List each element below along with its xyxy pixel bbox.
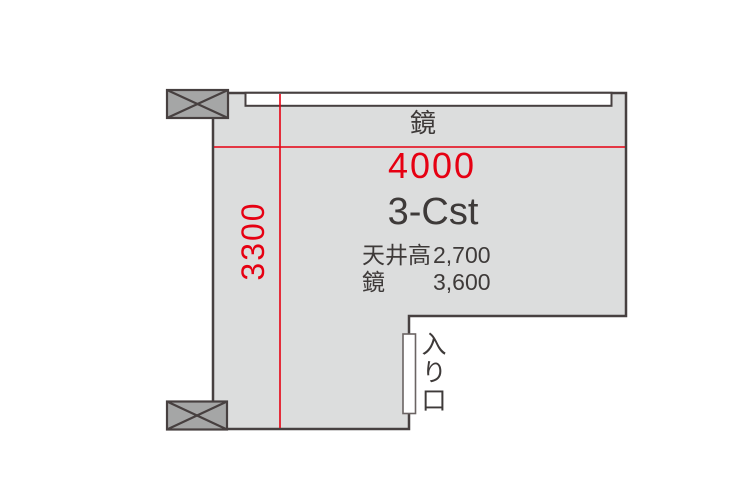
pillar-bottom bbox=[167, 402, 227, 430]
spec-label-mirror: 鏡 bbox=[362, 270, 433, 295]
floorplan-canvas: 鏡 4000 3300 3-Cst 天井高 2,700 鏡 3,600 入り口 bbox=[0, 0, 750, 498]
pillar-top bbox=[167, 90, 228, 118]
spec-value-ceiling-height: 2,700 bbox=[433, 243, 491, 268]
spec-value-mirror: 3,600 bbox=[433, 270, 491, 295]
mirror-wall-label: 鏡 bbox=[410, 110, 436, 136]
door-rect bbox=[403, 334, 416, 414]
room-name: 3-Cst bbox=[338, 193, 528, 231]
entrance-label: 入り口 bbox=[419, 331, 444, 415]
mirror-strip bbox=[246, 93, 612, 106]
dimension-depth-value: 3300 bbox=[237, 201, 269, 280]
dimension-width-value: 4000 bbox=[380, 148, 484, 184]
spec-label-ceiling-height: 天井高 bbox=[362, 243, 433, 268]
room-specs: 天井高 2,700 鏡 3,600 bbox=[362, 243, 491, 297]
